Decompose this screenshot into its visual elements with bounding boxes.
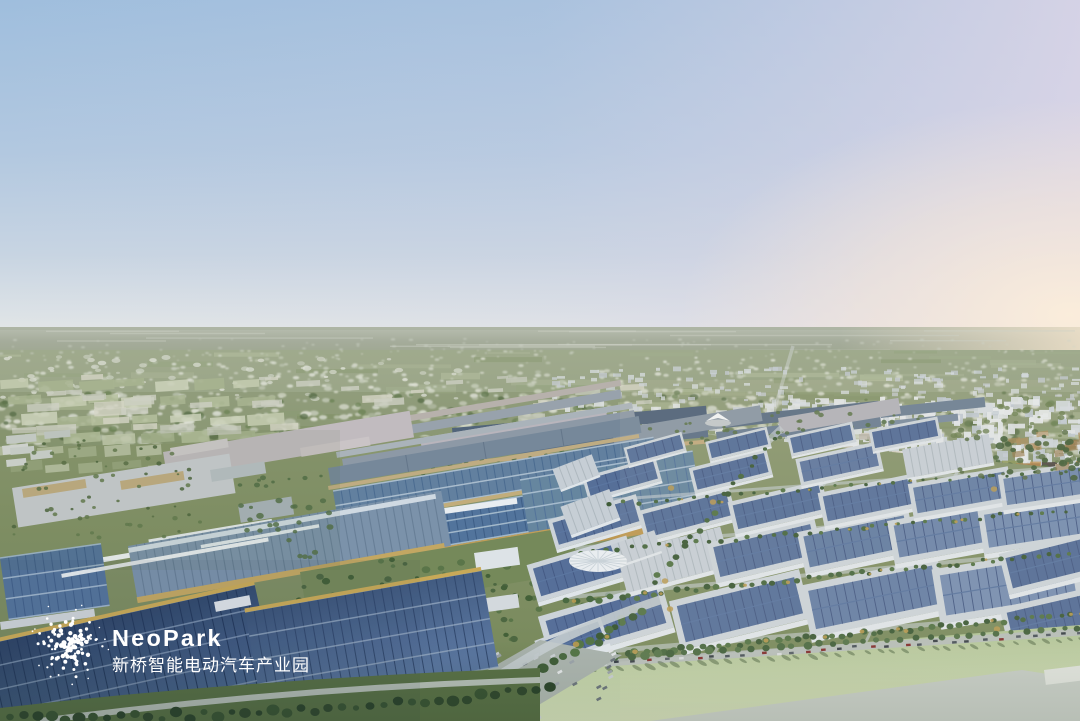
svg-text:新桥智能电动汽车产业园: 新桥智能电动汽车产业园 <box>112 656 310 675</box>
svg-text:NeoPark: NeoPark <box>112 625 223 651</box>
